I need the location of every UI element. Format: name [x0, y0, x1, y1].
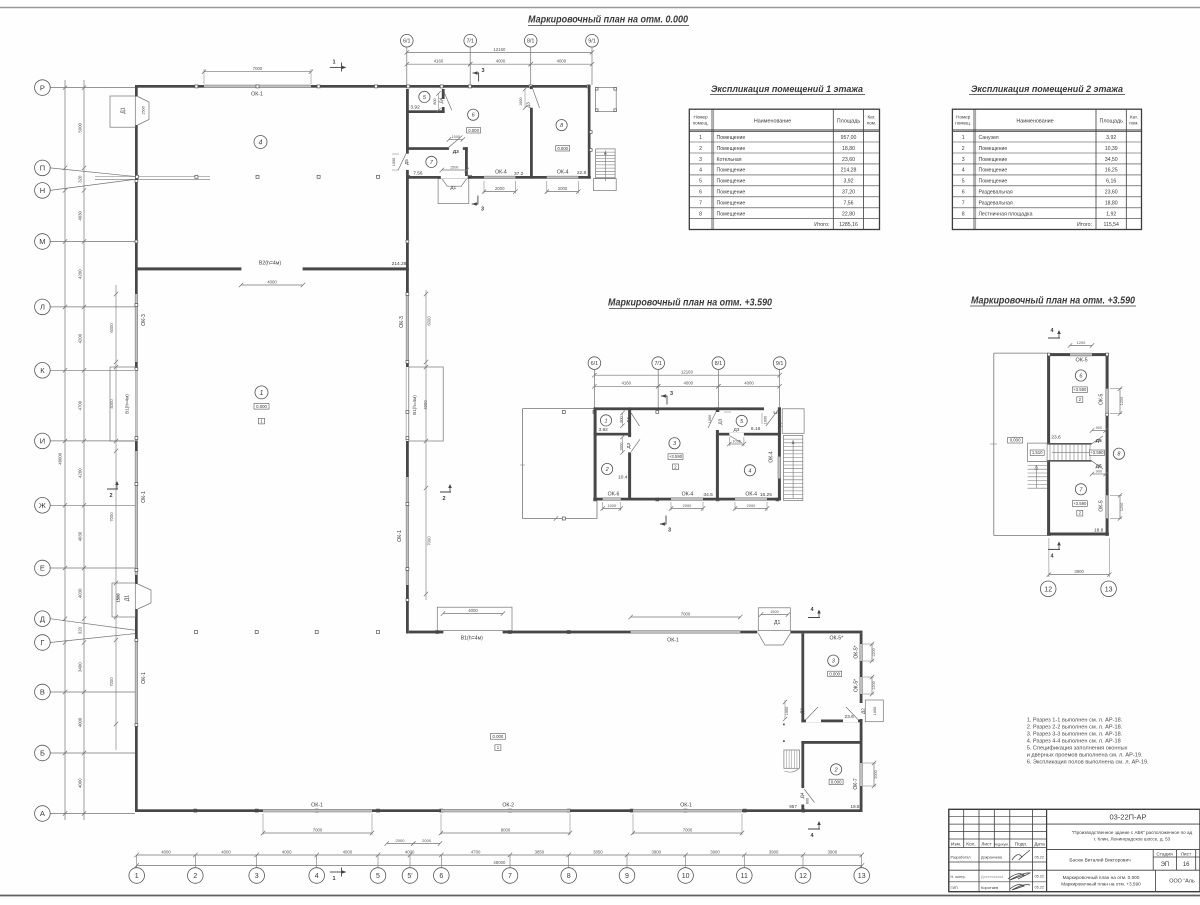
svg-text:Раздевальная: Раздевальная: [979, 201, 1013, 207]
svg-text:В1(h=4м): В1(h=4м): [461, 636, 483, 642]
svg-text:3. Разрез 3-3 выполнен см. л.: 3. Разрез 3-3 выполнен см. л. АР-18.: [1027, 732, 1123, 738]
svg-text:ОК-6: ОК-6: [608, 491, 620, 497]
svg-text:Д1: Д1: [121, 107, 127, 113]
svg-text:ОК-5*: ОК-5*: [854, 679, 860, 692]
svg-text:3,92: 3,92: [843, 179, 853, 185]
svg-text:ОК-1: ОК-1: [311, 803, 323, 809]
svg-text:ОК-4: ОК-4: [745, 491, 757, 497]
svg-text:Лист: Лист: [1181, 852, 1192, 858]
svg-text:6,16: 6,16: [1106, 179, 1116, 185]
svg-text:1000: 1000: [392, 158, 396, 166]
svg-text:Ж: Ж: [39, 501, 46, 510]
svg-text:Д4: Д4: [800, 792, 806, 798]
svg-text:7000: 7000: [681, 611, 691, 616]
svg-text:6: 6: [699, 190, 702, 196]
svg-text:2. Разрез 2-2 выполнен см. л.: 2. Разрез 2-2 выполнен см. л. АР-18.: [1027, 725, 1123, 731]
svg-text:18,80: 18,80: [1105, 201, 1118, 207]
svg-text:4700: 4700: [78, 400, 83, 410]
svg-text:4: 4: [259, 140, 263, 147]
svg-text:3: 3: [481, 68, 484, 74]
svg-text:И: И: [40, 437, 45, 446]
svg-text:ОК-4: ОК-4: [769, 451, 775, 462]
svg-text:7.56: 7.56: [413, 171, 423, 177]
svg-text:115,54: 115,54: [1103, 222, 1119, 228]
svg-text:ОК-4: ОК-4: [682, 491, 694, 497]
svg-text:1285,16: 1285,16: [839, 222, 858, 228]
svg-text:+3.590: +3.590: [1090, 450, 1104, 455]
svg-text:3: 3: [699, 157, 702, 163]
svg-text:4000: 4000: [161, 849, 171, 854]
svg-text:1: 1: [962, 135, 965, 141]
svg-text:48000: 48000: [493, 860, 506, 865]
svg-text:37.2: 37.2: [514, 171, 524, 177]
svg-text:2000: 2000: [495, 186, 505, 191]
svg-text:ЭП: ЭП: [1161, 862, 1170, 868]
svg-text:2000: 2000: [683, 503, 692, 508]
svg-text:Маркировочный план на отм. 0.0: Маркировочный план на отм. 0.000: [528, 15, 688, 26]
svg-text:10: 10: [682, 873, 690, 880]
svg-text:800: 800: [433, 98, 437, 104]
svg-text:М: М: [39, 237, 45, 246]
svg-text:Д1: Д1: [450, 185, 456, 191]
svg-text:Котельная: Котельная: [717, 157, 742, 163]
svg-text:Номер: Номер: [956, 115, 971, 120]
svg-text:900: 900: [1096, 469, 1102, 473]
svg-text:Коротаев: Коротаев: [981, 885, 998, 890]
svg-text:Дата: Дата: [1034, 842, 1045, 848]
svg-text:Н: Н: [40, 186, 45, 195]
svg-text:Помещение: Помещение: [979, 157, 1008, 163]
svg-text:13: 13: [858, 873, 866, 880]
svg-text:В: В: [40, 688, 45, 697]
svg-text:6: 6: [962, 190, 965, 196]
svg-text:Г: Г: [40, 638, 44, 647]
svg-text:1500: 1500: [770, 610, 778, 614]
svg-text:16: 16: [1183, 862, 1190, 868]
svg-text:2: 2: [699, 146, 702, 152]
svg-text:Д2: Д2: [800, 708, 806, 714]
svg-text:3: 3: [255, 873, 259, 880]
svg-text:4000: 4000: [282, 849, 292, 854]
svg-text:Д1: Д1: [774, 620, 781, 626]
svg-text:9/1: 9/1: [588, 39, 596, 45]
svg-text:+3.590: +3.590: [1073, 387, 1087, 392]
svg-text:7000: 7000: [109, 677, 114, 687]
svg-text:3: 3: [962, 157, 965, 163]
svg-text:Стадия: Стадия: [1156, 852, 1173, 858]
svg-text:0.000: 0.000: [1010, 438, 1021, 443]
svg-text:4160: 4160: [434, 59, 444, 64]
svg-text:1,92: 1,92: [1106, 212, 1116, 218]
svg-text:Кат.: Кат.: [1130, 115, 1138, 120]
svg-text:ГИП: ГИП: [951, 886, 959, 890]
svg-text:23.6: 23.6: [1051, 434, 1061, 440]
svg-text:ОК-5: ОК-5: [1076, 358, 1088, 364]
svg-text:Н. контр.: Н. контр.: [951, 875, 966, 879]
svg-text:Р: Р: [40, 83, 45, 92]
svg-text:В1(h=4м): В1(h=4м): [125, 394, 130, 414]
svg-text:Маркировочный план на отм. 0.0: Маркировочный план на отм. 0.000: [1063, 874, 1140, 880]
svg-text:4000: 4000: [221, 849, 231, 854]
svg-text:1500: 1500: [117, 594, 121, 602]
svg-text:Наименование: Наименование: [1016, 119, 1053, 125]
svg-text:2000: 2000: [747, 503, 756, 508]
svg-text:03-22П-АР: 03-22П-АР: [1109, 813, 1146, 822]
svg-text:Лист: Лист: [981, 842, 992, 848]
svg-text:Д3: Д3: [734, 427, 740, 433]
svg-text:8: 8: [567, 873, 571, 880]
svg-text:Кол.: Кол.: [966, 842, 976, 848]
svg-text:16.25: 16.25: [760, 492, 772, 498]
svg-text:Лестничная площадка: Лестничная площадка: [979, 212, 1033, 218]
svg-text:4030: 4030: [78, 588, 83, 598]
svg-text:12: 12: [799, 873, 807, 880]
svg-text:+3.590: +3.590: [669, 454, 683, 459]
svg-text:320: 320: [78, 175, 83, 183]
svg-text:5. Спецификация заполнения око: 5. Спецификация заполнения оконных: [1027, 746, 1128, 752]
svg-text:3850: 3850: [535, 849, 545, 854]
svg-text:Помещение: Помещение: [717, 179, 746, 185]
svg-text:10,39: 10,39: [1105, 146, 1118, 152]
svg-text:4. Разрез 4-4 выполнен см. л.: 4. Разрез 4-4 выполнен см. л. АР-18: [1027, 739, 1121, 745]
svg-text:Д1: Д1: [125, 595, 131, 601]
svg-text:4030: 4030: [78, 531, 83, 541]
svg-text:Д3: Д3: [453, 149, 459, 155]
svg-text:34.5: 34.5: [703, 492, 713, 498]
svg-text:3400: 3400: [78, 662, 83, 672]
svg-text:34,50: 34,50: [1105, 157, 1118, 163]
svg-text:ОК-1: ОК-1: [251, 92, 263, 98]
svg-text:Маркировочный план на отм. +3.: Маркировочный план на отм. +3.590: [608, 298, 772, 309]
svg-text:Санузел: Санузел: [979, 135, 999, 141]
svg-text:Номер: Номер: [694, 115, 709, 120]
svg-text:18.8: 18.8: [851, 804, 860, 809]
svg-text:214,28: 214,28: [841, 168, 857, 174]
svg-text:1000: 1000: [785, 707, 789, 715]
svg-text:2: 2: [834, 767, 838, 773]
svg-text:1500: 1500: [142, 106, 146, 114]
svg-text:Наименование: Наименование: [754, 119, 791, 125]
svg-text:ОК-7: ОК-7: [853, 778, 859, 789]
svg-text:1500: 1500: [450, 165, 458, 169]
svg-text:8/1: 8/1: [715, 361, 723, 367]
svg-text:Д5: Д5: [1096, 438, 1102, 444]
svg-text:1000: 1000: [708, 415, 712, 423]
svg-text:7: 7: [699, 201, 702, 207]
svg-text:4200: 4200: [78, 269, 83, 279]
svg-text:Помещение: Помещение: [717, 135, 746, 141]
svg-text:23.6: 23.6: [845, 714, 855, 720]
svg-text:Помещение: Помещение: [979, 168, 1008, 174]
svg-text:Итого:: Итого:: [1077, 222, 1092, 228]
svg-text:900: 900: [1096, 426, 1102, 430]
svg-text:Маркировочный план на отм. +3.: Маркировочный план на отм. +3.590: [1061, 880, 1141, 886]
svg-text:1200: 1200: [1119, 396, 1124, 405]
svg-text:800: 800: [806, 798, 810, 804]
svg-text:1200: 1200: [872, 681, 876, 689]
svg-text:и дверных проемов выполнена см: и дверных проемов выполнена см. л. АР-19…: [1027, 753, 1143, 759]
svg-text:12160: 12160: [681, 370, 694, 375]
svg-text:Помещение: Помещение: [717, 190, 746, 196]
svg-text:0.000: 0.000: [256, 404, 267, 409]
svg-text:4200: 4200: [78, 333, 83, 343]
svg-text:5: 5: [376, 873, 380, 880]
svg-text:2: 2: [193, 873, 197, 880]
svg-text:Подп.: Подп.: [1015, 842, 1028, 848]
svg-text:4700: 4700: [471, 849, 481, 854]
svg-text:пом.: пом.: [1129, 121, 1138, 126]
svg-text:8000: 8000: [501, 827, 511, 832]
svg-text:6. Экспликация полов выполнена: 6. Экспликация полов выполнена см. л. АР…: [1027, 760, 1149, 766]
svg-text:5900: 5900: [78, 122, 83, 132]
svg-text:7: 7: [962, 201, 965, 207]
svg-text:Помещение: Помещение: [717, 146, 746, 152]
svg-text:2: 2: [605, 467, 609, 473]
svg-text:4030: 4030: [78, 211, 83, 221]
svg-text:Л: Л: [40, 303, 45, 312]
svg-text:1200: 1200: [1077, 340, 1086, 345]
svg-text:А: А: [40, 809, 45, 818]
svg-text:11: 11: [741, 873, 748, 880]
svg-text:В2(h=4м): В2(h=4м): [259, 261, 281, 267]
svg-text:3: 3: [481, 207, 484, 213]
svg-text:Д5: Д5: [404, 159, 409, 165]
svg-text:3.92: 3.92: [599, 427, 609, 433]
svg-text:22.8: 22.8: [577, 170, 587, 176]
svg-text:23,60: 23,60: [842, 157, 855, 163]
svg-text:4000: 4000: [557, 59, 567, 64]
svg-text:1000: 1000: [519, 97, 523, 105]
svg-text:1035: 1035: [732, 439, 740, 443]
svg-text:Помещение: Помещение: [979, 179, 1008, 185]
svg-text:4000: 4000: [343, 849, 353, 854]
svg-text:16,25: 16,25: [1105, 168, 1118, 174]
svg-text:4200: 4200: [78, 468, 83, 478]
svg-text:6000: 6000: [109, 323, 114, 333]
svg-text:1000: 1000: [873, 707, 877, 715]
svg-text:3900: 3900: [828, 849, 838, 854]
svg-text:1000: 1000: [764, 416, 768, 424]
svg-text:Раздевальная: Раздевальная: [979, 190, 1013, 196]
svg-text:4160: 4160: [622, 381, 632, 386]
svg-text:320: 320: [78, 626, 83, 634]
svg-text:4000: 4000: [468, 608, 478, 613]
svg-text:ОК-3: ОК-3: [399, 316, 405, 328]
svg-text:пом.: пом.: [867, 121, 876, 126]
svg-text:ОК-4: ОК-4: [495, 170, 507, 176]
svg-text:1: 1: [332, 876, 335, 882]
svg-text:3900: 3900: [710, 849, 720, 854]
svg-text:ОК-5*: ОК-5*: [829, 636, 843, 642]
svg-text:3900: 3900: [652, 849, 662, 854]
svg-text:2: 2: [442, 496, 445, 502]
svg-text:Д3: Д3: [718, 418, 723, 424]
svg-text:ОК-1: ОК-1: [667, 638, 679, 644]
svg-text:1: 1: [699, 135, 702, 141]
svg-text:1200: 1200: [1119, 502, 1124, 511]
svg-text:4: 4: [962, 168, 965, 174]
svg-text:0.000: 0.000: [831, 779, 842, 784]
svg-text:Маркировочный план на отм. +3.: Маркировочный план на отм. +3.590: [971, 296, 1135, 307]
svg-text:4000: 4000: [684, 381, 694, 386]
svg-text:5: 5: [699, 179, 702, 185]
svg-text:3: 3: [670, 391, 673, 397]
svg-text:05.22: 05.22: [1035, 886, 1045, 890]
svg-text:4000: 4000: [78, 778, 83, 788]
svg-text:214.28: 214.28: [392, 261, 407, 267]
svg-text:6.16: 6.16: [751, 426, 761, 432]
svg-text:ОК-5*: ОК-5*: [854, 645, 860, 658]
svg-text:2000: 2000: [558, 186, 568, 191]
svg-text:ОК-4: ОК-4: [557, 170, 569, 176]
svg-text:7000: 7000: [427, 536, 432, 546]
svg-text:1: 1: [332, 60, 335, 66]
svg-text:0.000: 0.000: [557, 146, 568, 151]
svg-text:1: 1: [260, 390, 264, 397]
svg-text:1.510: 1.510: [1032, 450, 1043, 455]
svg-text:7000: 7000: [253, 66, 263, 71]
svg-text:ОК-1: ОК-1: [141, 491, 147, 503]
svg-text:7000: 7000: [313, 827, 323, 832]
svg-text:Итого:: Итого:: [814, 222, 829, 228]
svg-text:1000: 1000: [607, 503, 616, 508]
svg-text:ОК-3: ОК-3: [141, 314, 147, 326]
svg-text:ОК-1: ОК-1: [397, 530, 403, 542]
svg-text:Д4: Д4: [439, 97, 444, 103]
svg-text:ОК-2: ОК-2: [502, 803, 514, 809]
svg-text:0.000: 0.000: [829, 671, 840, 676]
svg-text:13: 13: [1105, 586, 1113, 593]
svg-text:3850: 3850: [593, 849, 603, 854]
svg-text:48000: 48000: [58, 452, 63, 465]
svg-text:Б: Б: [40, 749, 45, 758]
svg-text:4000: 4000: [267, 279, 277, 284]
svg-text:Помещение: Помещение: [717, 212, 746, 218]
svg-text:Басюк Виталий Викторович: Басюк Виталий Викторович: [1069, 857, 1131, 864]
svg-text:г. Клин, Ленинградское шоссе,: г. Клин, Ленинградское шоссе, д. 53: [1094, 837, 1171, 842]
svg-text:0.000: 0.000: [468, 128, 479, 133]
svg-text:6/1: 6/1: [403, 39, 411, 45]
svg-text:ОК-1: ОК-1: [141, 672, 147, 684]
svg-text:7000: 7000: [683, 827, 693, 832]
svg-text:ОК-5: ОК-5: [1099, 393, 1105, 404]
svg-text:Д: Д: [40, 614, 45, 623]
svg-text:1: 1: [604, 418, 607, 424]
svg-text:Е: Е: [40, 564, 45, 573]
svg-text:1: 1: [135, 873, 139, 880]
svg-text:4000: 4000: [78, 717, 83, 727]
svg-text:1000: 1000: [452, 135, 460, 139]
svg-text:Кат.: Кат.: [867, 115, 875, 120]
svg-text:6000: 6000: [427, 316, 432, 326]
svg-text:3,92: 3,92: [1106, 135, 1116, 141]
svg-text:2000: 2000: [874, 770, 878, 778]
svg-text:Докраичева: Докраичева: [981, 856, 1003, 860]
svg-text:12160: 12160: [493, 47, 506, 52]
svg-text:18,80: 18,80: [842, 146, 855, 152]
svg-text:Экспликация помещений 1 этажа: Экспликация помещений 1 этажа: [711, 84, 863, 94]
svg-text:0.000: 0.000: [493, 734, 504, 739]
svg-text:1. Разрез 1-1 выполнен см. л.: 1. Разрез 1-1 выполнен см. л. АР-18.: [1027, 718, 1123, 724]
svg-text:23,60: 23,60: [1105, 190, 1118, 196]
svg-text:6/1: 6/1: [591, 361, 599, 367]
svg-text:2000: 2000: [396, 838, 406, 843]
svg-text:4000: 4000: [423, 400, 428, 410]
svg-text:4: 4: [748, 468, 751, 474]
svg-text:помещ.: помещ.: [955, 121, 971, 126]
svg-text:3.92: 3.92: [410, 105, 420, 111]
svg-text:4000: 4000: [405, 849, 415, 854]
svg-text:12: 12: [1044, 586, 1052, 593]
svg-text:957,00: 957,00: [841, 135, 857, 141]
svg-text:05.22: 05.22: [1035, 856, 1045, 860]
svg-text:Д3: Д3: [626, 443, 631, 449]
svg-text:7/1: 7/1: [466, 39, 474, 45]
svg-text:Изм.: Изм.: [951, 842, 961, 848]
svg-text:8/1: 8/1: [527, 39, 535, 45]
svg-text:Площадь: Площадь: [837, 119, 861, 125]
svg-text:10.4: 10.4: [618, 474, 628, 480]
svg-text:“Производственное здание с АБК: “Производственное здание с АБК” располож…: [1072, 830, 1193, 835]
svg-text:ООО “Аль: ООО “Аль: [1169, 879, 1195, 885]
svg-text:7/1: 7/1: [654, 361, 662, 367]
svg-text:5': 5': [407, 873, 412, 880]
svg-text:Помещение: Помещение: [717, 201, 746, 207]
svg-text:К: К: [40, 366, 45, 375]
svg-text:05.22: 05.22: [1035, 875, 1045, 879]
svg-text:2: 2: [962, 146, 965, 152]
svg-text:помещ.: помещ.: [693, 121, 709, 126]
svg-text:ОК-5: ОК-5: [1099, 500, 1105, 511]
svg-text:957: 957: [789, 804, 797, 809]
svg-text:3: 3: [668, 528, 671, 534]
svg-text:4: 4: [315, 873, 319, 880]
svg-text:1200: 1200: [872, 648, 876, 656]
svg-text:4: 4: [699, 168, 702, 174]
svg-text:37,20: 37,20: [842, 190, 855, 196]
svg-text:№докум.: №докум.: [994, 842, 1009, 846]
svg-text:1000: 1000: [620, 442, 624, 450]
svg-text:2000: 2000: [422, 838, 432, 843]
svg-text:2: 2: [109, 493, 112, 499]
svg-text:4000: 4000: [496, 59, 506, 64]
svg-text:Площадь: Площадь: [1099, 119, 1123, 125]
svg-text:В1(h=4м): В1(h=4м): [412, 395, 417, 415]
svg-text:3900: 3900: [769, 849, 779, 854]
svg-text:Экспликация помещений 2 этажа: Экспликация помещений 2 этажа: [971, 84, 1123, 94]
svg-text:ОК-1: ОК-1: [680, 803, 692, 809]
svg-text:+3.590: +3.590: [1073, 501, 1087, 506]
svg-text:3900: 3900: [1074, 569, 1084, 574]
svg-text:П: П: [40, 164, 45, 173]
svg-text:Дисеглазова: Дисеглазова: [981, 875, 1004, 879]
svg-text:9/1: 9/1: [776, 361, 784, 367]
svg-text:800: 800: [620, 416, 624, 422]
svg-text:7000: 7000: [109, 512, 114, 522]
svg-text:22,80: 22,80: [842, 212, 855, 218]
svg-text:4000: 4000: [744, 381, 754, 386]
svg-text:7: 7: [508, 873, 512, 880]
svg-text:7,56: 7,56: [843, 201, 853, 207]
svg-text:Разработал: Разработал: [951, 856, 971, 860]
svg-text:6: 6: [439, 873, 443, 880]
svg-text:8: 8: [962, 212, 965, 218]
svg-text:5: 5: [962, 179, 965, 185]
svg-text:9: 9: [625, 873, 629, 880]
svg-text:8: 8: [699, 212, 702, 218]
svg-text:Помещение: Помещение: [979, 146, 1008, 152]
svg-text:Помещение: Помещение: [717, 168, 746, 174]
